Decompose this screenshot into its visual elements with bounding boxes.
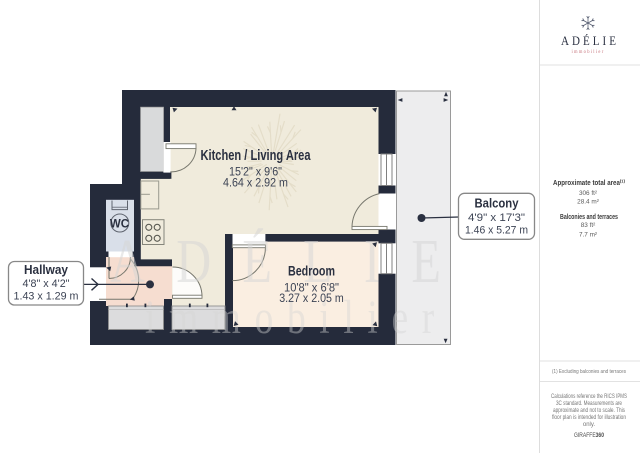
svg-text:Hallway: Hallway (24, 263, 68, 277)
svg-text:4'9" x 17'3": 4'9" x 17'3" (468, 212, 525, 224)
svg-text:Approximate total area⁽¹⁾: Approximate total area⁽¹⁾ (553, 178, 625, 187)
svg-text:4.64 x 2.92 m: 4.64 x 2.92 m (223, 178, 288, 190)
svg-text:306 ft²: 306 ft² (579, 190, 597, 197)
svg-text:1.46 x 5.27 m: 1.46 x 5.27 m (465, 224, 528, 236)
svg-text:28.4 m²: 28.4 m² (577, 199, 599, 206)
svg-text:15'2" x 9'6": 15'2" x 9'6" (229, 166, 282, 178)
svg-text:7.7 m²: 7.7 m² (579, 232, 597, 239)
svg-text:Balcony: Balcony (475, 197, 519, 211)
svg-text:Kitchen / Living Area: Kitchen / Living Area (201, 148, 312, 164)
svg-text:only.: only. (583, 422, 596, 428)
svg-text:Bedroom: Bedroom (288, 262, 335, 278)
svg-text:ADÉLIE: ADÉLIE (561, 33, 619, 48)
svg-text:floor plan is intended for ill: floor plan is intended for illustration (552, 415, 626, 421)
svg-text:Calculations reference the RIC: Calculations reference the RICS IPMS (551, 394, 627, 400)
svg-text:3C standard. Measurements are: 3C standard. Measurements are (556, 401, 623, 407)
svg-text:Balconies and terraces: Balconies and terraces (560, 212, 618, 221)
svg-text:immobilier: immobilier (572, 49, 605, 55)
svg-text:WC: WC (110, 219, 129, 231)
svg-text:GIRAFFE360: GIRAFFE360 (574, 432, 604, 439)
svg-text:4'8" x 4'2": 4'8" x 4'2" (23, 278, 70, 290)
svg-text:3.27 x 2.05 m: 3.27 x 2.05 m (279, 293, 344, 305)
svg-text:1.43 x 1.29 m: 1.43 x 1.29 m (14, 290, 79, 302)
svg-text:(1) Excluding balconies and te: (1) Excluding balconies and terraces (552, 369, 626, 375)
svg-text:83 ft²: 83 ft² (581, 222, 596, 229)
svg-text:approximate and not to scale.: approximate and not to scale. This (553, 408, 625, 414)
